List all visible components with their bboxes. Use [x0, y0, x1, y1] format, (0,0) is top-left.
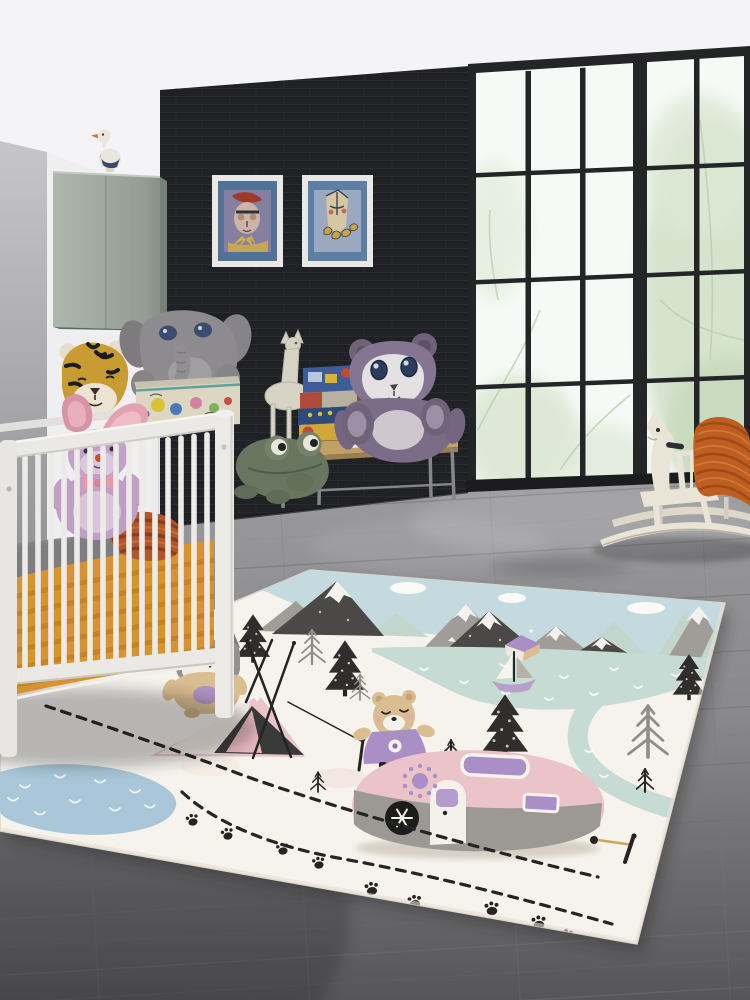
scene-canvas — [0, 0, 750, 1000]
teddy-chest — [372, 410, 424, 450]
duck-eye — [102, 133, 104, 135]
framed-picture-left — [212, 175, 283, 267]
duck-base — [106, 168, 114, 172]
deer-eye — [295, 342, 298, 345]
horse-eye — [656, 428, 660, 432]
wall-cabinet — [53, 172, 167, 331]
teddy-eye-right — [401, 358, 417, 377]
teddy-eye-left — [371, 361, 387, 380]
caravan-door-handle — [443, 811, 447, 815]
elephant-eye-right — [194, 323, 212, 338]
caravan-window-large — [462, 754, 529, 777]
horse-cushion — [693, 417, 750, 506]
elephant-eye-left — [159, 326, 177, 341]
caravan-window-small — [524, 794, 559, 812]
nursery-room-photo — [0, 0, 750, 1000]
framed-picture-right — [302, 175, 373, 267]
